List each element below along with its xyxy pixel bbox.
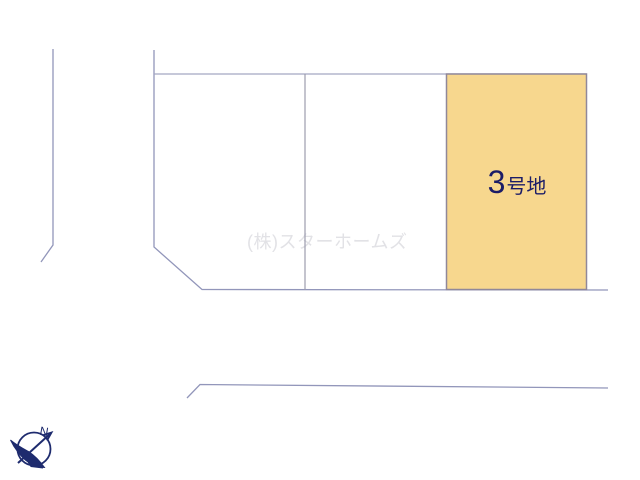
site-plan-canvas: (株)スターホームズ N 3 号地: [0, 0, 640, 480]
road-boundary-line: [187, 385, 608, 399]
boundary-line-left: [41, 49, 53, 262]
lot-3-label: 3 号地: [447, 74, 587, 290]
lot-3-suffix: 号地: [506, 170, 546, 199]
lot-3-number: 3: [488, 74, 506, 290]
compass-rose: N: [11, 424, 52, 468]
